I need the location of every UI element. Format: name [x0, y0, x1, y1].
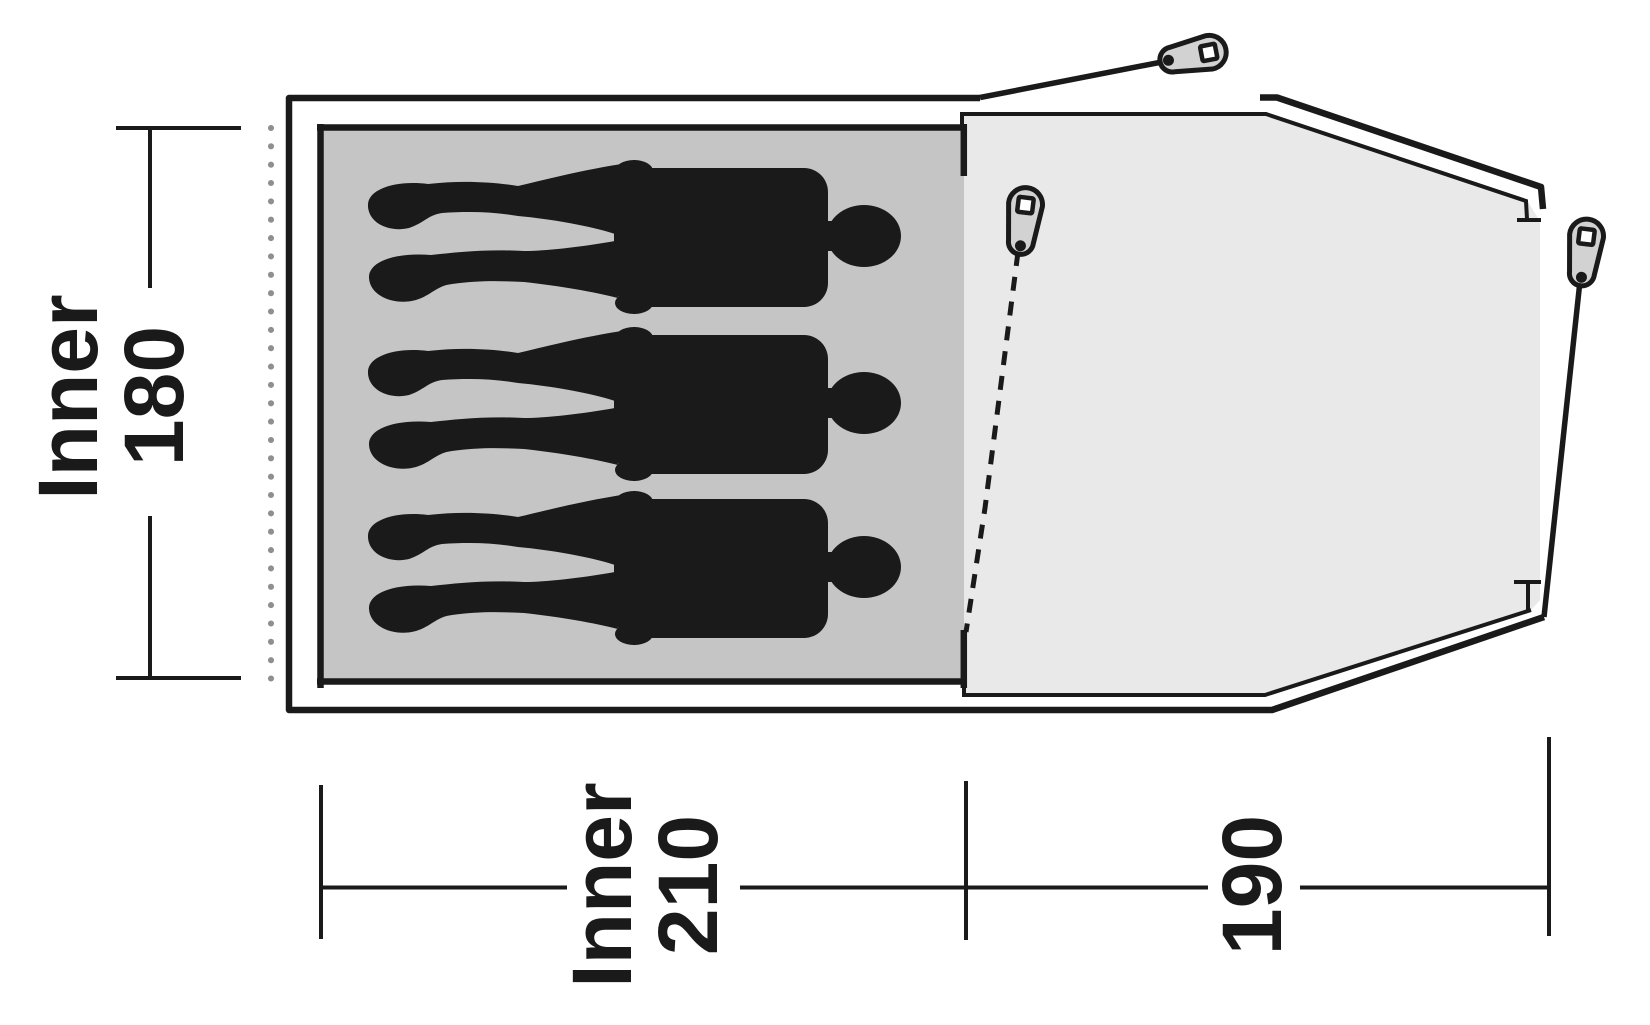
svg-text:180: 180: [107, 326, 201, 466]
svg-text:190: 190: [1205, 815, 1299, 955]
svg-text:Inner: Inner: [21, 294, 115, 499]
svg-text:210: 210: [641, 815, 735, 955]
svg-text:Inner: Inner: [555, 782, 649, 987]
